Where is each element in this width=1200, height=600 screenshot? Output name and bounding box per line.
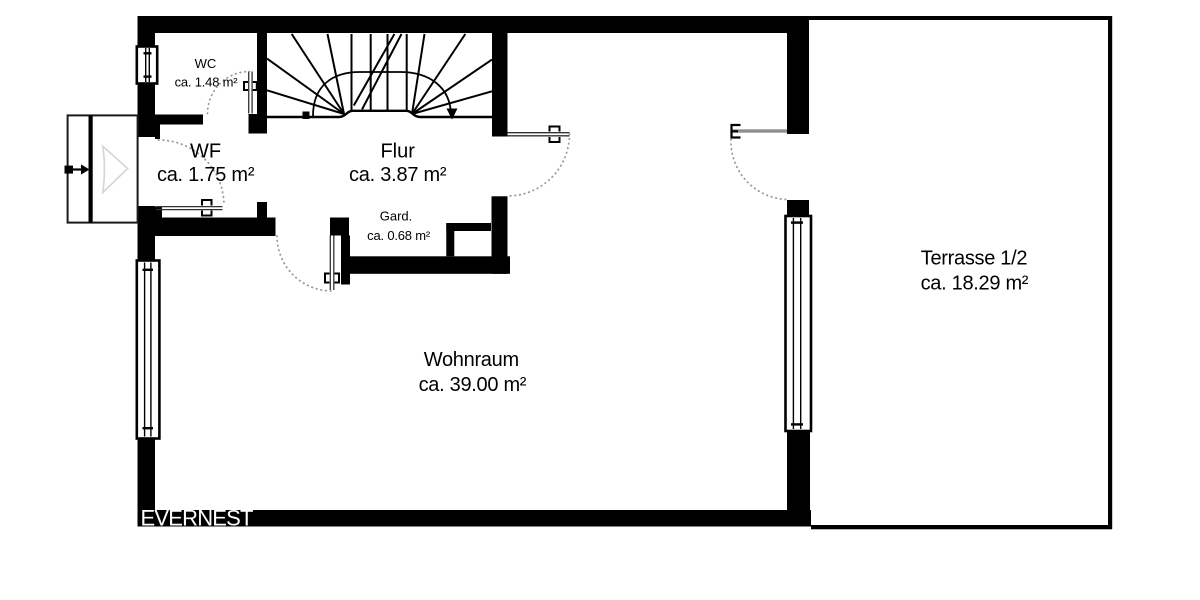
svg-text:ca. 39.00 m²: ca. 39.00 m²	[419, 374, 527, 396]
svg-text:ca. 1.48 m²: ca. 1.48 m²	[175, 75, 239, 90]
svg-text:Gard.: Gard.	[380, 208, 413, 223]
svg-text:ca. 3.87 m²: ca. 3.87 m²	[349, 164, 447, 186]
svg-text:Terrasse 1/2: Terrasse 1/2	[921, 247, 1028, 269]
svg-text:WF: WF	[190, 141, 221, 163]
svg-text:Wohnraum: Wohnraum	[424, 349, 519, 371]
svg-text:Flur: Flur	[380, 140, 415, 162]
svg-text:ca. 18.29 m²: ca. 18.29 m²	[921, 272, 1029, 294]
svg-text:ca. 1.75 m²: ca. 1.75 m²	[157, 164, 255, 186]
svg-text:EVERNEST: EVERNEST	[141, 506, 254, 531]
svg-text:ca. 0.68 m²: ca. 0.68 m²	[367, 228, 431, 243]
svg-text:WC: WC	[195, 56, 217, 71]
